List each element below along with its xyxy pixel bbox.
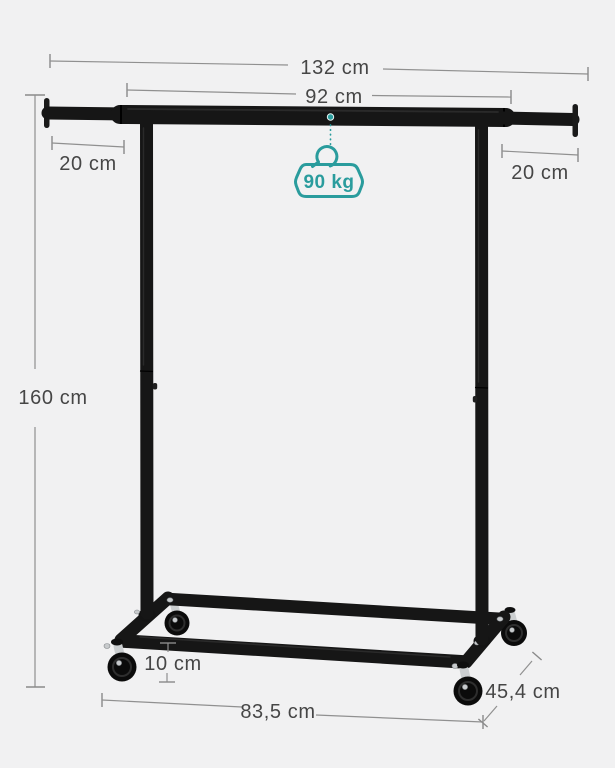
left-pole xyxy=(140,118,157,613)
pole-tube xyxy=(147,118,148,613)
pole-tube xyxy=(482,120,483,639)
dimension-left-extension: 20 cm xyxy=(52,136,124,175)
bar-main xyxy=(120,115,506,118)
joint-collar xyxy=(452,664,458,669)
dim-line xyxy=(50,61,288,65)
dim-label-base-rail-height: 10 cm xyxy=(144,653,201,675)
caster-hub xyxy=(173,618,178,623)
product-dimension-image: 132 cm 92 cm 160 cm 20 cm 20 cm xyxy=(0,0,615,768)
dim-line xyxy=(502,151,578,155)
pole-seam xyxy=(140,371,153,372)
caster-cap xyxy=(111,639,123,646)
dim-label-base-length: 83,5 cm xyxy=(240,701,315,723)
dim-label-depth: 45,4 cm xyxy=(485,681,560,703)
dim-line xyxy=(383,69,588,74)
bar-end-cap-right xyxy=(573,104,579,137)
dimension-total-width: 132 cm xyxy=(50,54,588,81)
joint-collar xyxy=(167,598,173,602)
base-back-rail xyxy=(168,599,503,619)
caster-wheel xyxy=(108,653,137,682)
dim-line xyxy=(102,700,242,707)
joint-collar xyxy=(104,644,110,649)
dim-line xyxy=(372,96,511,98)
dim-tick xyxy=(532,652,541,660)
dim-line xyxy=(127,90,296,94)
caster-wheel xyxy=(165,611,190,636)
dimension-height: 160 cm xyxy=(18,95,87,687)
dim-label-height: 160 cm xyxy=(18,387,87,409)
dimension-right-extension: 20 cm xyxy=(502,144,578,184)
dimension-base-length: 83,5 cm xyxy=(102,693,483,729)
dim-line xyxy=(520,661,532,675)
dim-label-total-width: 132 cm xyxy=(300,57,369,79)
caster-hub xyxy=(510,628,515,633)
caster-hub xyxy=(116,660,121,665)
caster-cap xyxy=(457,662,469,669)
pole-adjust-knob xyxy=(473,396,477,403)
joint-collar xyxy=(134,610,139,614)
caster-wheel xyxy=(454,677,483,706)
dim-label-right-extension: 20 cm xyxy=(511,162,568,184)
capacity-label: 90 kg xyxy=(303,172,354,193)
load-capacity-badge: 90 kg xyxy=(295,114,362,197)
dim-line xyxy=(484,706,497,721)
rack-diagram-canvas: 132 cm 92 cm 160 cm 20 cm 20 cm xyxy=(0,0,615,768)
dimension-hanging-width: 92 cm xyxy=(127,83,511,108)
dim-label-left-extension: 20 cm xyxy=(59,153,116,175)
dim-line xyxy=(316,715,483,722)
pole-seam xyxy=(475,388,488,389)
dim-line xyxy=(52,143,124,147)
dimension-depth: 45,4 cm xyxy=(478,652,560,727)
caster-hub xyxy=(462,684,467,689)
pole-adjust-knob xyxy=(153,383,157,390)
right-pole xyxy=(473,120,488,639)
bar-anchor-dot xyxy=(327,114,333,120)
bar-extension-right xyxy=(503,118,573,120)
joint-collar xyxy=(497,617,503,621)
dim-label-hanging-width: 92 cm xyxy=(305,86,362,108)
